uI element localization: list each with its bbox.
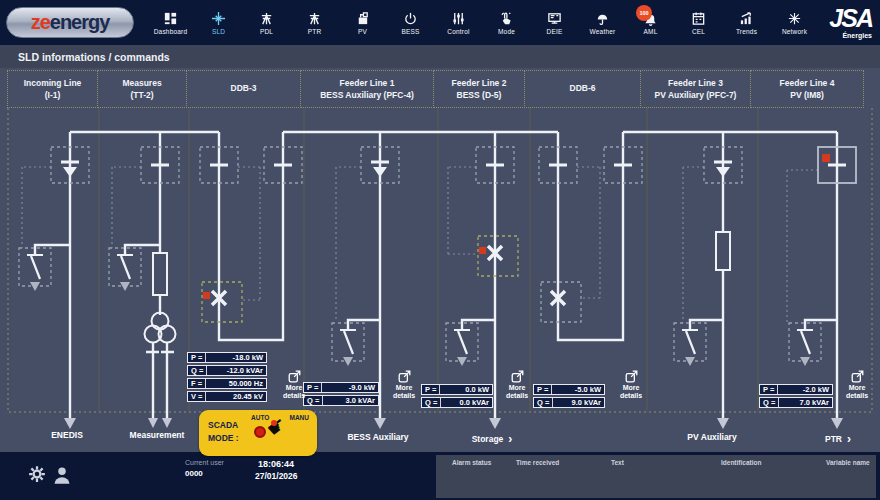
- logo-ze-text: ze: [31, 11, 50, 34]
- nav-label: Weather: [590, 28, 616, 35]
- current-user-id: 0000: [185, 469, 203, 478]
- sld-diagram-area: Incoming Line(I-1) Measures(TT-2) DDB-3 …: [0, 68, 880, 452]
- feeder2-measurement-panel: P =0.0 kW Q =0.0 kVAr: [421, 384, 493, 408]
- column-header-row: Incoming Line(I-1) Measures(TT-2) DDB-3 …: [8, 70, 864, 108]
- settings-gear-icon[interactable]: [28, 465, 46, 483]
- nav-item-weather[interactable]: Weather: [580, 11, 625, 35]
- nav-label: Trends: [736, 28, 757, 35]
- col-header-ddb6: DDB-6: [524, 70, 641, 108]
- measure-row: Q =3.0 kVAr: [303, 395, 379, 406]
- nav-item-deie[interactable]: DEIE: [532, 11, 577, 35]
- page-title-bar: SLD informations / commands: [0, 45, 880, 68]
- nav-label: AML: [644, 28, 658, 35]
- sld-icon: [211, 11, 226, 26]
- nav-item-sld[interactable]: SLD: [196, 11, 241, 35]
- nav-label: PDL: [260, 28, 273, 35]
- nav-label: Control: [447, 28, 469, 35]
- nav-item-mode[interactable]: Mode: [484, 11, 529, 35]
- bess-auxiliary-label: BESS Auxiliary: [347, 432, 408, 442]
- pv-auxiliary-label: PV Auxiliary: [687, 432, 736, 442]
- jsa-energies-logo: JSA Énergies: [829, 6, 872, 39]
- ddb6-breaker[interactable]: [541, 282, 581, 322]
- feeder4-more-details-button[interactable]: More details: [838, 370, 876, 401]
- col-header-incoming-line: Incoming Line(I-1): [7, 70, 98, 108]
- nav-label: Dashboard: [154, 28, 188, 35]
- col-header-feeder4: Feeder Line 4PV (IM8): [750, 70, 864, 108]
- calendar-icon: [691, 11, 706, 26]
- nav-item-pv[interactable]: PV: [340, 11, 385, 35]
- col-header-measures: Measures(TT-2): [97, 70, 187, 108]
- dashboard-icon: [163, 11, 178, 26]
- enedis-label: ENEDIS: [51, 430, 83, 440]
- storage-link[interactable]: Storage›: [472, 432, 513, 446]
- external-link-icon: [398, 370, 411, 383]
- nav-item-ptr[interactable]: PTR: [292, 11, 337, 35]
- measure-row: Q =0.0 kVAr: [421, 397, 493, 408]
- nav-item-cel[interactable]: CEL: [676, 11, 721, 35]
- nav-label: DEIE: [547, 28, 563, 35]
- measure-row: P =-2.0 kW: [759, 384, 833, 395]
- mode-indicator[interactable]: [254, 426, 266, 438]
- nav-label: PTR: [308, 28, 322, 35]
- measure-row: P =-18.0 kW: [187, 352, 267, 363]
- nav-item-trends[interactable]: Trends: [724, 11, 769, 35]
- col-header-feeder1: Feeder Line 1BESS Auxiliary (PFC-4): [300, 70, 434, 108]
- measures-earth-switch[interactable]: [109, 248, 141, 291]
- feeder1-more-details-button[interactable]: More details: [385, 370, 423, 401]
- measurement-label: Measurement: [130, 430, 185, 440]
- external-link-icon: [288, 370, 301, 383]
- nav-label: Mode: [498, 28, 515, 35]
- ddb3-breaker[interactable]: [202, 282, 242, 322]
- pylon-icon: [259, 11, 274, 26]
- col-header-feeder2: Feeder Line 2BESS (D-5): [433, 70, 525, 108]
- chevron-right-icon: ›: [847, 432, 851, 446]
- alarm-header-variable: Variable name: [826, 459, 870, 466]
- alarm-header-text: Text: [611, 459, 624, 466]
- nav-label: SLD: [212, 28, 225, 35]
- nav-item-control[interactable]: Control: [436, 11, 481, 35]
- col-header-ddb3: DDB-3: [186, 70, 301, 108]
- feeder4-measurement-panel: P =-2.0 kW Q =7.0 kVAr: [759, 384, 833, 408]
- alarm-header-identification: Identification: [721, 459, 761, 466]
- clock-date: 27/01/2026: [255, 471, 298, 481]
- alarm-dot: [822, 154, 830, 162]
- scada-mode-toggle[interactable]: SCADA MODE : AUTO MANU ☛: [199, 410, 317, 456]
- measure-row: P =0.0 kW: [421, 384, 493, 395]
- transformer-tower-icon: [307, 11, 322, 26]
- manu-label: MANU: [290, 414, 310, 421]
- feeder2-more-details-button[interactable]: More details: [498, 370, 536, 401]
- ddb3-measurement-panel: P =-18.0 kW Q =-12.0 kVAr F =50.000 Hz V…: [187, 352, 267, 402]
- scada-mode-label: SCADA MODE :: [208, 419, 239, 445]
- incoming-earth-switch[interactable]: [19, 248, 51, 291]
- measure-row: Q =9.0 kVAr: [533, 397, 605, 408]
- ptr-link[interactable]: PTR›: [825, 432, 851, 446]
- ddb3-more-details-button[interactable]: More details: [275, 370, 313, 401]
- external-link-icon: [625, 370, 638, 383]
- aml-alarm-count-badge: 100: [636, 5, 652, 21]
- ddb6-measurement-panel: P =-5.0 kW Q =9.0 kVAr: [533, 384, 605, 408]
- hand-alert-dot: [271, 420, 277, 426]
- hand-click-icon: [499, 11, 514, 26]
- nav-item-aml[interactable]: 100 AML: [628, 11, 673, 35]
- network-icon: [787, 11, 802, 26]
- trend-chart-icon: [739, 11, 754, 26]
- nav-item-network[interactable]: Network: [772, 11, 817, 35]
- feeder3-fuse: [716, 232, 730, 270]
- scada-app-window: zeenergy Dashboard SLD PDL PTR PV: [0, 0, 880, 500]
- feeder2-breaker[interactable]: [478, 236, 518, 276]
- nav-items: Dashboard SLD PDL PTR PV BESS: [148, 11, 829, 35]
- external-link-icon: [511, 370, 524, 383]
- weather-icon: [595, 11, 610, 26]
- alarm-list-panel: Alarm status Time received Text Identifi…: [436, 455, 876, 498]
- sliders-icon: [451, 11, 466, 26]
- nav-item-bess[interactable]: BESS: [388, 11, 433, 35]
- logo-energy-text: energy: [50, 11, 110, 34]
- nav-label: CEL: [692, 28, 705, 35]
- nav-label: PV: [358, 28, 367, 35]
- current-user-label: Current user: [185, 459, 224, 466]
- clock-time: 18:06:44: [258, 459, 294, 469]
- measure-row: V =20.45 kV: [187, 391, 267, 402]
- zeenergy-logo: zeenergy: [6, 7, 134, 38]
- page-title: SLD informations / commands: [18, 51, 170, 63]
- jsa-logo-subtext: Énergies: [829, 32, 872, 39]
- nav-label: Network: [782, 28, 807, 35]
- flow-arrows: [64, 418, 843, 429]
- power-icon: [403, 11, 418, 26]
- alarm-header-time: Time received: [516, 459, 559, 466]
- alarm-dot: [203, 292, 210, 299]
- col-header-feeder3: Feeder Line 3PV Auxiliary (PFC-7): [640, 70, 751, 108]
- top-nav-bar: zeenergy Dashboard SLD PDL PTR PV: [0, 0, 880, 45]
- jsa-logo-text: JSA: [829, 6, 872, 31]
- feeder1-earth-switch[interactable]: [332, 323, 364, 366]
- measure-row: Q =7.0 kVAr: [759, 397, 833, 408]
- measure-row: F =50.000 Hz: [187, 378, 267, 389]
- ddb6-more-details-button[interactable]: More details: [612, 370, 650, 401]
- solar-panel-icon: [355, 11, 370, 26]
- user-icon[interactable]: [52, 465, 72, 485]
- screen-icon: [547, 11, 562, 26]
- feeder3-earth-switch[interactable]: [674, 323, 706, 366]
- nav-label: BESS: [401, 28, 419, 35]
- nav-item-pdl[interactable]: PDL: [244, 11, 289, 35]
- measure-row: P =-9.0 kW: [303, 382, 379, 393]
- feeder1-measurement-panel: P =-9.0 kW Q =3.0 kVAr: [303, 382, 379, 406]
- alarm-dot: [479, 247, 486, 254]
- feeder2-earth-switch[interactable]: [446, 323, 478, 366]
- nav-item-dashboard[interactable]: Dashboard: [148, 11, 193, 35]
- alarm-header-status: Alarm status: [452, 459, 491, 466]
- measure-row: Q =-12.0 kVAr: [187, 365, 267, 376]
- measure-row: P =-5.0 kW: [533, 384, 605, 395]
- external-link-icon: [851, 370, 864, 383]
- feeder4-earth-switch[interactable]: [789, 323, 821, 366]
- chevron-right-icon: ›: [508, 432, 512, 446]
- footer-bar: Current user 0000 18:06:44 27/01/2026 Al…: [0, 452, 880, 500]
